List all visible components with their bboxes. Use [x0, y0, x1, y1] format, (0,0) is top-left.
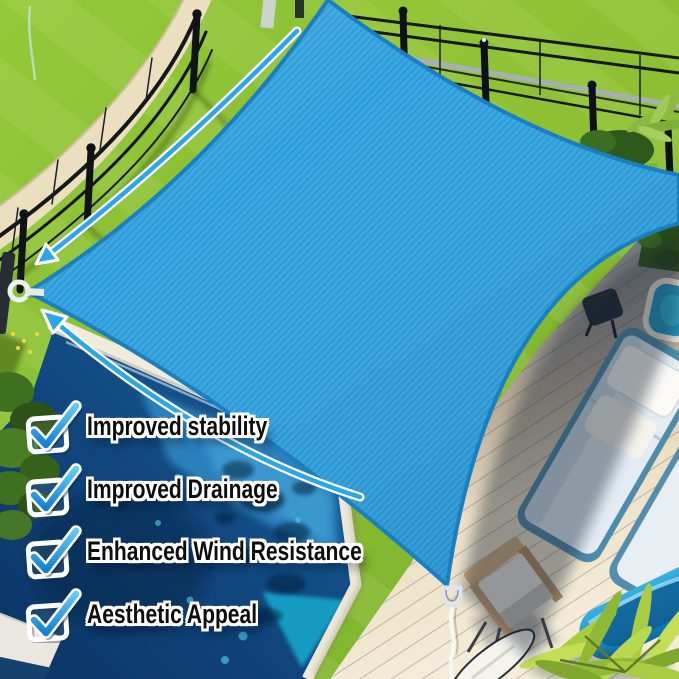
product-hero-image: Improved stability Improved Drainage Enh…: [0, 0, 679, 679]
hook-icon: [27, 288, 44, 296]
backyard-scene: [0, 0, 679, 679]
